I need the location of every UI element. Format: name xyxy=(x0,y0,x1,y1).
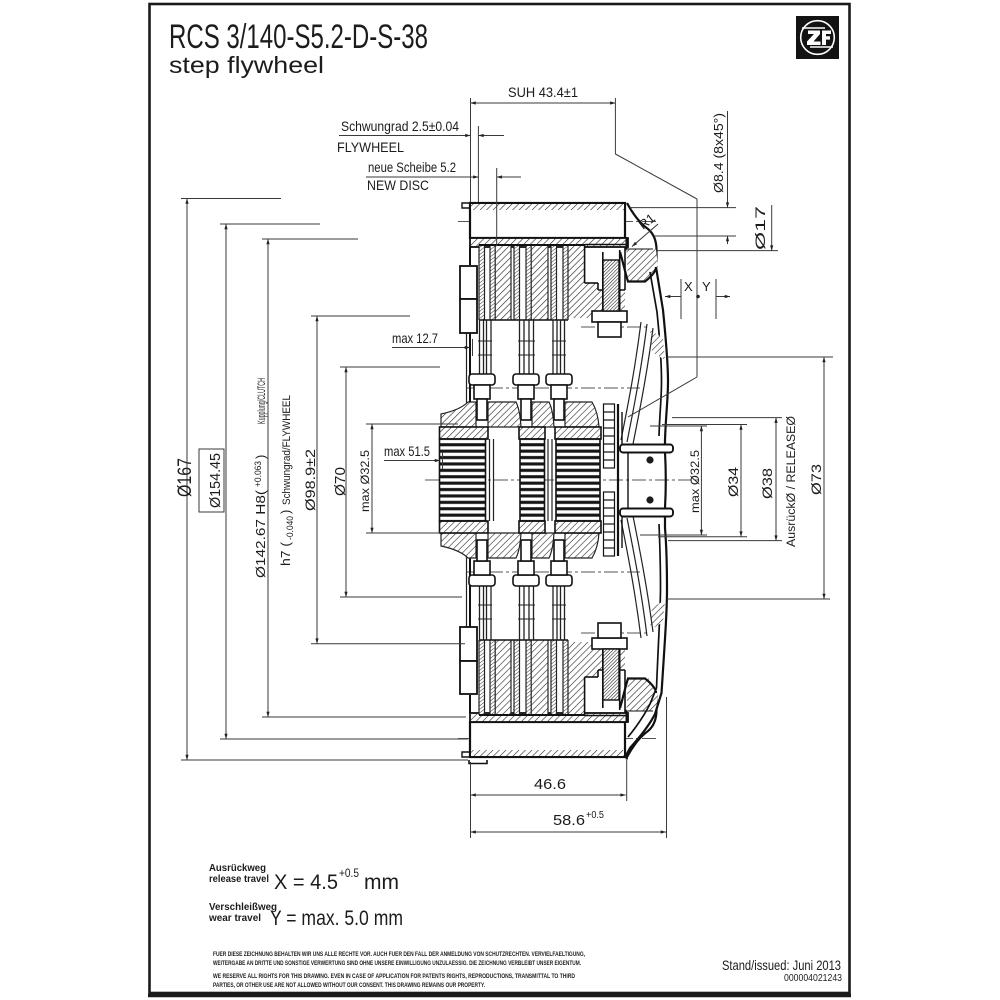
svg-text:Ø98.9±2: Ø98.9±2 xyxy=(302,449,318,511)
svg-text:+0.5: +0.5 xyxy=(586,810,604,821)
svg-text:): ) xyxy=(253,455,268,459)
svg-text:Ø73: Ø73 xyxy=(808,464,824,495)
svg-text:FLYWHEEL: FLYWHEEL xyxy=(337,139,404,155)
svg-text:Ø70: Ø70 xyxy=(332,467,349,496)
svg-text:000004021243: 000004021243 xyxy=(784,972,842,984)
svg-text:RCS 3/140-S5.2-D-S-38: RCS 3/140-S5.2-D-S-38 xyxy=(169,18,428,56)
svg-text:SUH 43.4±1: SUH 43.4±1 xyxy=(508,84,578,100)
svg-text:+0.063: +0.063 xyxy=(253,461,263,487)
svg-text:Schwungrad/FLYWHEEL: Schwungrad/FLYWHEEL xyxy=(281,395,293,505)
svg-text:Stand/issued: Juni 2013: Stand/issued: Juni 2013 xyxy=(722,957,841,973)
svg-text:max Ø32.5: max Ø32.5 xyxy=(688,450,702,513)
svg-text:release travel: release travel xyxy=(209,874,269,885)
svg-text:NEW DISC: NEW DISC xyxy=(367,177,429,193)
svg-text:AusrückØ / RELEASEØ: AusrückØ / RELEASEØ xyxy=(786,416,798,547)
svg-text:neue Scheibe 5.2: neue Scheibe 5.2 xyxy=(368,159,456,175)
svg-text:): ) xyxy=(278,510,293,514)
svg-text:X: X xyxy=(684,279,693,294)
svg-text:Y = max. 5.0 mm: Y = max. 5.0 mm xyxy=(270,907,403,930)
svg-text:h7 (: h7 ( xyxy=(278,541,293,566)
svg-text:Verschleißweg: Verschleißweg xyxy=(209,902,277,913)
svg-text:46.6: 46.6 xyxy=(534,776,566,793)
svg-text:Ø34: Ø34 xyxy=(725,467,741,497)
svg-text:X = 4.5: X = 4.5 xyxy=(274,871,338,894)
svg-text:+0.5: +0.5 xyxy=(339,866,359,880)
svg-text:PARTIES, OR OTHER USE ARE NOT: PARTIES, OR OTHER USE ARE NOT ALLOWED WI… xyxy=(213,982,485,989)
svg-text:Y: Y xyxy=(702,279,711,294)
svg-text:Ø38: Ø38 xyxy=(759,468,775,499)
svg-text:step flywheel: step flywheel xyxy=(169,52,324,78)
svg-text:Ø167: Ø167 xyxy=(175,458,196,497)
svg-text:Ø17: Ø17 xyxy=(752,206,768,250)
svg-text:Ausrückweg: Ausrückweg xyxy=(209,863,266,874)
svg-text:mm: mm xyxy=(364,871,399,894)
svg-text:max Ø32.5: max Ø32.5 xyxy=(358,450,372,512)
svg-text:FUER DIESE ZEICHNUNG BEHALTEN: FUER DIESE ZEICHNUNG BEHALTEN WIR UNS AL… xyxy=(213,951,585,958)
svg-text:wear travel: wear travel xyxy=(208,913,261,924)
svg-text:Ø142.67 H8(: Ø142.67 H8( xyxy=(253,489,268,578)
svg-text:Ø8.4 (8x45°): Ø8.4 (8x45°) xyxy=(711,113,726,193)
svg-text:Kupplung/CLUTCH: Kupplung/CLUTCH xyxy=(256,378,268,424)
svg-text:max 12.7: max 12.7 xyxy=(392,330,438,346)
svg-text:max 51.5: max 51.5 xyxy=(384,443,430,459)
svg-text:Schwungrad 2.5±0.04: Schwungrad 2.5±0.04 xyxy=(341,118,459,134)
svg-text:WE RESERVE ALL RIGHTS FOR THIS: WE RESERVE ALL RIGHTS FOR THIS DRAWING. … xyxy=(213,973,575,980)
svg-text:58.6: 58.6 xyxy=(553,812,585,829)
svg-text:-0.040: -0.040 xyxy=(285,516,295,540)
svg-text:WEITERGABE AN DRITTE UND SONST: WEITERGABE AN DRITTE UND SONSTIGE VERWER… xyxy=(213,960,581,967)
svg-text:Ø154.45: Ø154.45 xyxy=(207,453,224,508)
